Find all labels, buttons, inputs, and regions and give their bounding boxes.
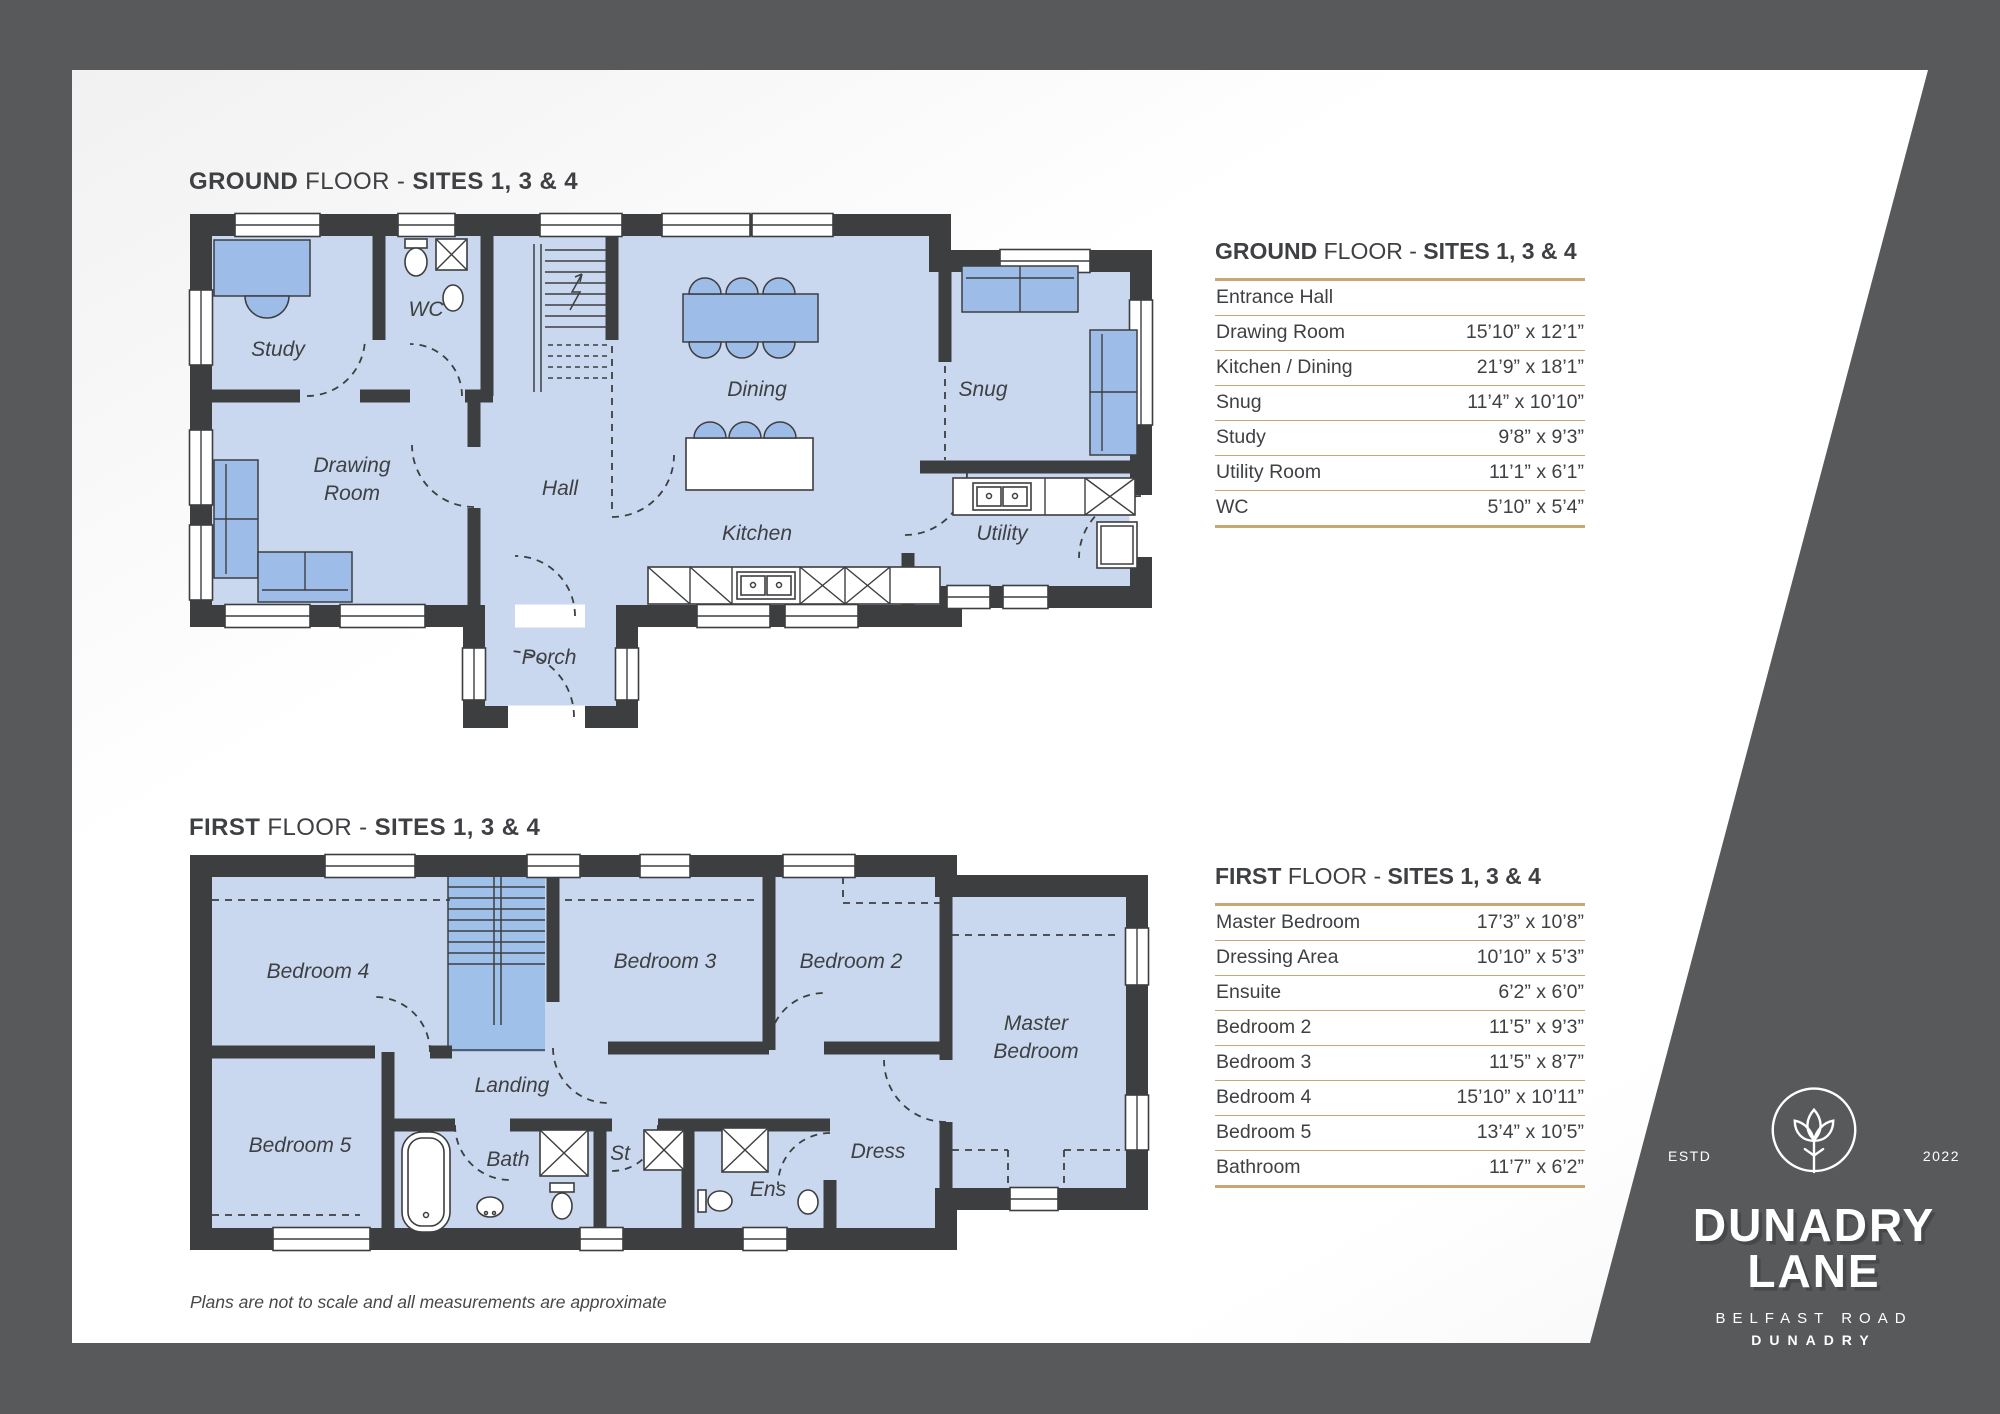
kitchen-island bbox=[686, 438, 813, 490]
room-label: Bedroom 2 bbox=[800, 950, 903, 973]
wc-toilet bbox=[405, 239, 427, 248]
room-label: Bedroom 4 bbox=[267, 960, 370, 983]
room-label: Utility bbox=[976, 522, 1029, 545]
bath-toilet bbox=[550, 1183, 574, 1192]
ground-floor-plan: StudyWCDrawingRoomHallPorchDiningKitchen… bbox=[140, 160, 1200, 780]
table-row: Kitchen / Dining21’9” x 18’1” bbox=[1215, 351, 1585, 386]
table-row: WC5’10” x 5’4” bbox=[1215, 491, 1585, 528]
first-table-title: FIRST FLOOR - SITES 1, 3 & 4 bbox=[1215, 863, 1585, 890]
logo-town: DUNADRY bbox=[1642, 1332, 1986, 1348]
table-row: Bedroom 415’10” x 10’11” bbox=[1215, 1081, 1585, 1116]
room-name: Master Bedroom bbox=[1216, 911, 1360, 934]
table-row: Bedroom 211’5” x 9’3” bbox=[1215, 1011, 1585, 1046]
table-row: Ensuite6’2” x 6’0” bbox=[1215, 976, 1585, 1011]
bath-sink bbox=[477, 1197, 503, 1217]
room-dimensions: 11’7” x 6’2” bbox=[1489, 1156, 1584, 1179]
room-name: Dressing Area bbox=[1216, 946, 1338, 969]
stairwell bbox=[448, 877, 545, 1052]
room-label: Kitchen bbox=[722, 522, 792, 545]
table-row: Drawing Room15’10” x 12’1” bbox=[1215, 316, 1585, 351]
room-name: Drawing Room bbox=[1216, 321, 1345, 344]
room-name: Ensuite bbox=[1216, 981, 1281, 1004]
room-dimensions: 11’4” x 10’10” bbox=[1467, 391, 1584, 414]
room-label: Ens bbox=[750, 1178, 787, 1201]
room-label: Dress bbox=[851, 1140, 906, 1163]
table-row: Entrance Hall bbox=[1215, 281, 1585, 316]
table-row: Bathroom11’7” x 6’2” bbox=[1215, 1151, 1585, 1188]
table-row: Dressing Area10’10” x 5’3” bbox=[1215, 941, 1585, 976]
room-name: Bedroom 3 bbox=[1216, 1051, 1311, 1074]
room-dimensions: 11’5” x 9’3” bbox=[1489, 1016, 1584, 1039]
room-label: Bedroom 3 bbox=[614, 950, 717, 973]
logo-name-line2: LANE bbox=[1642, 1248, 1986, 1294]
utility-appliance bbox=[1097, 522, 1137, 568]
logo-year: 2022 bbox=[1923, 1148, 1960, 1164]
room-dimensions: 10’10” x 5’3” bbox=[1477, 946, 1584, 969]
room-label: Bath bbox=[486, 1148, 529, 1171]
room-label: Snug bbox=[958, 378, 1007, 401]
room-label: Study bbox=[251, 338, 306, 361]
room-name: Utility Room bbox=[1216, 461, 1321, 484]
disclaimer-text: Plans are not to scale and all measureme… bbox=[190, 1292, 667, 1313]
logo-mark: ESTD 2022 bbox=[1642, 1072, 1986, 1202]
study-desk bbox=[214, 240, 310, 296]
room-name: WC bbox=[1216, 496, 1249, 519]
first-floor-table: FIRST FLOOR - SITES 1, 3 & 4 Master Bedr… bbox=[1215, 863, 1585, 1188]
room-dimensions: 15’10” x 10’11” bbox=[1456, 1086, 1584, 1109]
table-row: Bedroom 311’5” x 8’7” bbox=[1215, 1046, 1585, 1081]
room-dimensions: 21’9” x 18’1” bbox=[1477, 356, 1584, 379]
room-name: Bedroom 5 bbox=[1216, 1121, 1311, 1144]
ensuite-toilet bbox=[698, 1190, 706, 1212]
room-dimensions: 6’2” x 6’0” bbox=[1498, 981, 1584, 1004]
room-name: Bedroom 4 bbox=[1216, 1086, 1311, 1109]
room-name: Snug bbox=[1216, 391, 1262, 414]
room-dimensions: 5’10” x 5’4” bbox=[1488, 496, 1584, 519]
ensuite-sink bbox=[798, 1190, 818, 1214]
table-row: Bedroom 513’4” x 10’5” bbox=[1215, 1116, 1585, 1151]
room-label: Hall bbox=[542, 477, 580, 500]
dunadry-lane-logo: ESTD 2022 DUNADRY LANE BELFAST ROAD DUNA… bbox=[1642, 1072, 1986, 1348]
room-name: Study bbox=[1216, 426, 1266, 449]
dining-table bbox=[683, 294, 818, 342]
room-dimensions: 15’10” x 12’1” bbox=[1466, 321, 1584, 344]
ground-floor-table: GROUND FLOOR - SITES 1, 3 & 4 Entrance H… bbox=[1215, 238, 1585, 528]
first-floor-plan: Bedroom 4Bedroom 5Bedroom 3Bedroom 2Land… bbox=[140, 820, 1200, 1300]
room-name: Bedroom 2 bbox=[1216, 1016, 1311, 1039]
table-row: Study9’8” x 9’3” bbox=[1215, 421, 1585, 456]
table-row: Master Bedroom17’3” x 10’8” bbox=[1215, 906, 1585, 941]
ground-table-title: GROUND FLOOR - SITES 1, 3 & 4 bbox=[1215, 238, 1585, 265]
ground-table-rows: Entrance HallDrawing Room15’10” x 12’1”K… bbox=[1215, 278, 1585, 528]
room-label: Porch bbox=[522, 646, 577, 669]
room-dimensions: 11’5” x 8’7” bbox=[1489, 1051, 1584, 1074]
logo-name-line1: DUNADRY bbox=[1642, 1202, 1986, 1248]
room-dimensions: 17’3” x 10’8” bbox=[1477, 911, 1584, 934]
tulip-circle-icon bbox=[1759, 1080, 1869, 1198]
first-table-rows: Master Bedroom17’3” x 10’8”Dressing Area… bbox=[1215, 903, 1585, 1188]
table-row: Utility Room11’1” x 6’1” bbox=[1215, 456, 1585, 491]
room-label: Bedroom 5 bbox=[249, 1134, 352, 1157]
logo-estd: ESTD bbox=[1668, 1148, 1711, 1164]
room-label: WC bbox=[409, 298, 445, 321]
room-dimensions: 9’8” x 9’3” bbox=[1498, 426, 1584, 449]
room-label: Landing bbox=[475, 1074, 550, 1097]
table-row: Snug11’4” x 10’10” bbox=[1215, 386, 1585, 421]
room-dimensions: 13’4” x 10’5” bbox=[1477, 1121, 1584, 1144]
logo-road: BELFAST ROAD bbox=[1642, 1310, 1986, 1327]
room-name: Bathroom bbox=[1216, 1156, 1301, 1179]
room-label: St bbox=[610, 1142, 631, 1165]
brochure-page: { "theme":{ "background":"#58595B","pane… bbox=[0, 0, 2000, 1414]
room-name: Entrance Hall bbox=[1216, 286, 1333, 309]
room-dimensions: 11’1” x 6’1” bbox=[1489, 461, 1584, 484]
room-name: Kitchen / Dining bbox=[1216, 356, 1353, 379]
room-label: Dining bbox=[727, 378, 787, 401]
wc-sink bbox=[443, 285, 463, 311]
